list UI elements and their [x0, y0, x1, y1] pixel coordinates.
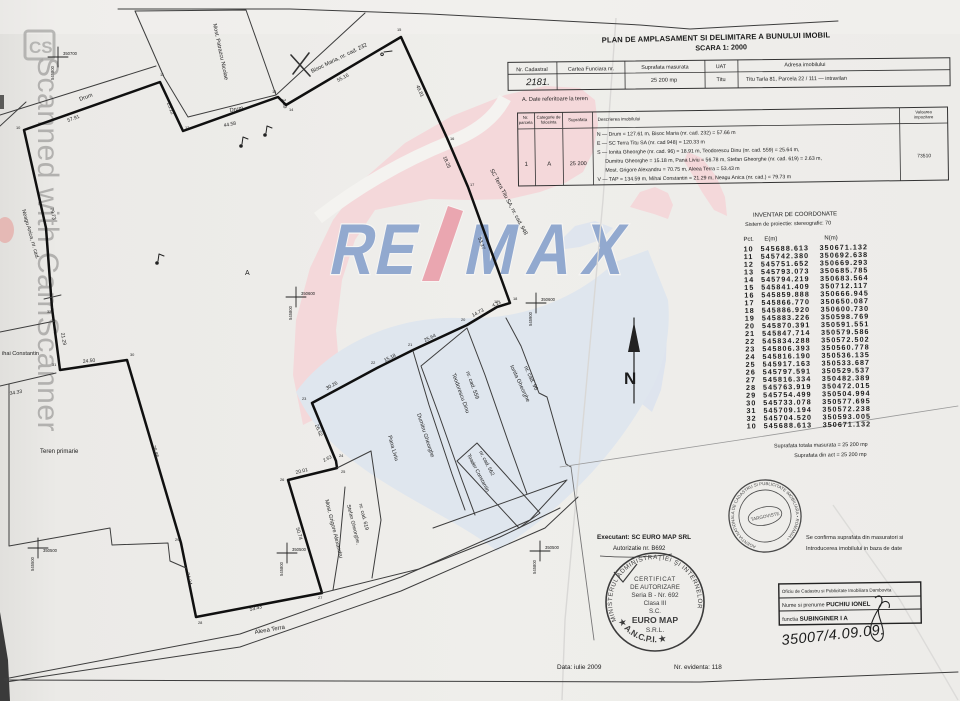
svg-text:Cartea Funciara nr.: Cartea Funciara nr. — [568, 66, 614, 72]
svg-text:27: 27 — [318, 595, 322, 600]
svg-text:functia SUBINGINER I A: functia SUBINGINER I A — [782, 615, 848, 623]
svg-text:18: 18 — [513, 296, 517, 301]
svg-text:A. Date referitoare la teren: A. Date referitoare la teren — [522, 96, 588, 103]
svg-text:CS: CS — [29, 38, 53, 57]
svg-text:N(m): N(m) — [824, 235, 837, 241]
svg-text:Pct.: Pct. — [743, 237, 754, 243]
svg-text:22: 22 — [371, 360, 375, 365]
svg-text:31: 31 — [52, 362, 56, 367]
svg-text:28: 28 — [198, 620, 202, 625]
svg-text:Suprafata masurata: Suprafata masurata — [641, 64, 688, 70]
svg-text:25 200 mp: 25 200 mp — [651, 78, 677, 84]
svg-text:A: A — [547, 162, 551, 168]
svg-text:Titu Tarla 81, Parcela 22 / 11: Titu Tarla 81, Parcela 22 / 111 — intrav… — [746, 76, 847, 83]
svg-text:350500: 350500 — [43, 548, 58, 553]
svg-text:Teren primarie: Teren primarie — [40, 449, 79, 455]
svg-text:23: 23 — [302, 396, 306, 401]
svg-text:Nume si prenume PUCHIU IONEL: Nume si prenume PUCHIU IONEL — [782, 601, 871, 609]
svg-text:N: N — [624, 369, 636, 388]
svg-text:impozitare: impozitare — [914, 114, 934, 119]
svg-text:Seria B - Nr. 692: Seria B - Nr. 692 — [631, 592, 679, 599]
svg-text:Descrierea imobilului: Descrierea imobilului — [598, 116, 641, 122]
svg-text:EURO MAP: EURO MAP — [632, 615, 679, 625]
svg-text:350700: 350700 — [63, 51, 78, 56]
svg-text:73510: 73510 — [917, 153, 931, 159]
svg-text:Suprafata din act = 25 200 mp: Suprafata din act = 25 200 mp — [794, 452, 866, 459]
svg-text:Nr. evidenta: 118: Nr. evidenta: 118 — [674, 664, 722, 671]
svg-text:folosinta: folosinta — [541, 119, 557, 124]
svg-text:Introducerea imobilului in baz: Introducerea imobilului in baza de date — [806, 546, 902, 552]
svg-text:Adresa imobilului: Adresa imobilului — [784, 62, 825, 68]
svg-text:545500: 545500 — [30, 556, 35, 571]
svg-text:DE AUTORIZARE: DE AUTORIZARE — [630, 584, 680, 591]
svg-text:S.R.L.: S.R.L. — [646, 627, 664, 634]
svg-text:350500: 350500 — [292, 547, 307, 552]
svg-text:SCARA 1: 2000: SCARA 1: 2000 — [695, 42, 747, 52]
svg-text:16: 16 — [450, 136, 454, 141]
svg-text:350600: 350600 — [541, 297, 556, 302]
svg-text:545900: 545900 — [528, 311, 533, 326]
svg-text:A: A — [245, 270, 250, 277]
svg-text:CERTIFICAT: CERTIFICAT — [634, 576, 676, 583]
svg-text:32: 32 — [47, 309, 51, 314]
svg-text:29: 29 — [175, 537, 179, 542]
svg-text:ihai Constantin: ihai Constantin — [2, 351, 39, 357]
svg-text:Suprafata: Suprafata — [568, 117, 588, 122]
svg-text:2181.: 2181. — [525, 77, 550, 88]
svg-text:parcela: parcela — [519, 120, 533, 125]
svg-text:545800: 545800 — [50, 65, 55, 80]
svg-text:15: 15 — [397, 27, 401, 32]
svg-text:Se confirma suprafata din masu: Se confirma suprafata din masuratori si — [806, 535, 903, 541]
svg-text:11: 11 — [160, 72, 164, 77]
svg-text:17: 17 — [470, 182, 474, 187]
svg-text:Data: iulie 2009: Data: iulie 2009 — [557, 664, 602, 671]
svg-text:19: 19 — [494, 299, 498, 304]
svg-text:350600: 350600 — [301, 291, 316, 296]
svg-text:Executant: SC EURO MAP SRL: Executant: SC EURO MAP SRL — [597, 534, 691, 541]
svg-text:Clasa III: Clasa III — [644, 600, 667, 607]
svg-text:UAT: UAT — [716, 64, 727, 70]
svg-text:25: 25 — [341, 469, 345, 474]
svg-text:Titu: Titu — [716, 77, 725, 83]
svg-text:25 200: 25 200 — [570, 161, 587, 167]
svg-text:545800: 545800 — [288, 305, 293, 320]
svg-text:26: 26 — [280, 477, 284, 482]
svg-text:S.C.: S.C. — [649, 608, 661, 615]
svg-text:545800: 545800 — [532, 559, 537, 574]
svg-text:Autorizatie nr. B692: Autorizatie nr. B692 — [613, 546, 666, 552]
svg-text:Nr. Cadastral: Nr. Cadastral — [516, 67, 548, 73]
svg-text:MAX: MAX — [459, 210, 646, 290]
svg-text:13: 13 — [272, 89, 276, 94]
svg-text:12: 12 — [185, 125, 189, 130]
svg-text:350500: 350500 — [545, 545, 560, 550]
svg-text:545800: 545800 — [279, 561, 284, 576]
svg-text:21: 21 — [408, 342, 412, 347]
svg-text:RE: RE — [324, 210, 428, 290]
svg-text:E(m): E(m) — [764, 236, 777, 242]
